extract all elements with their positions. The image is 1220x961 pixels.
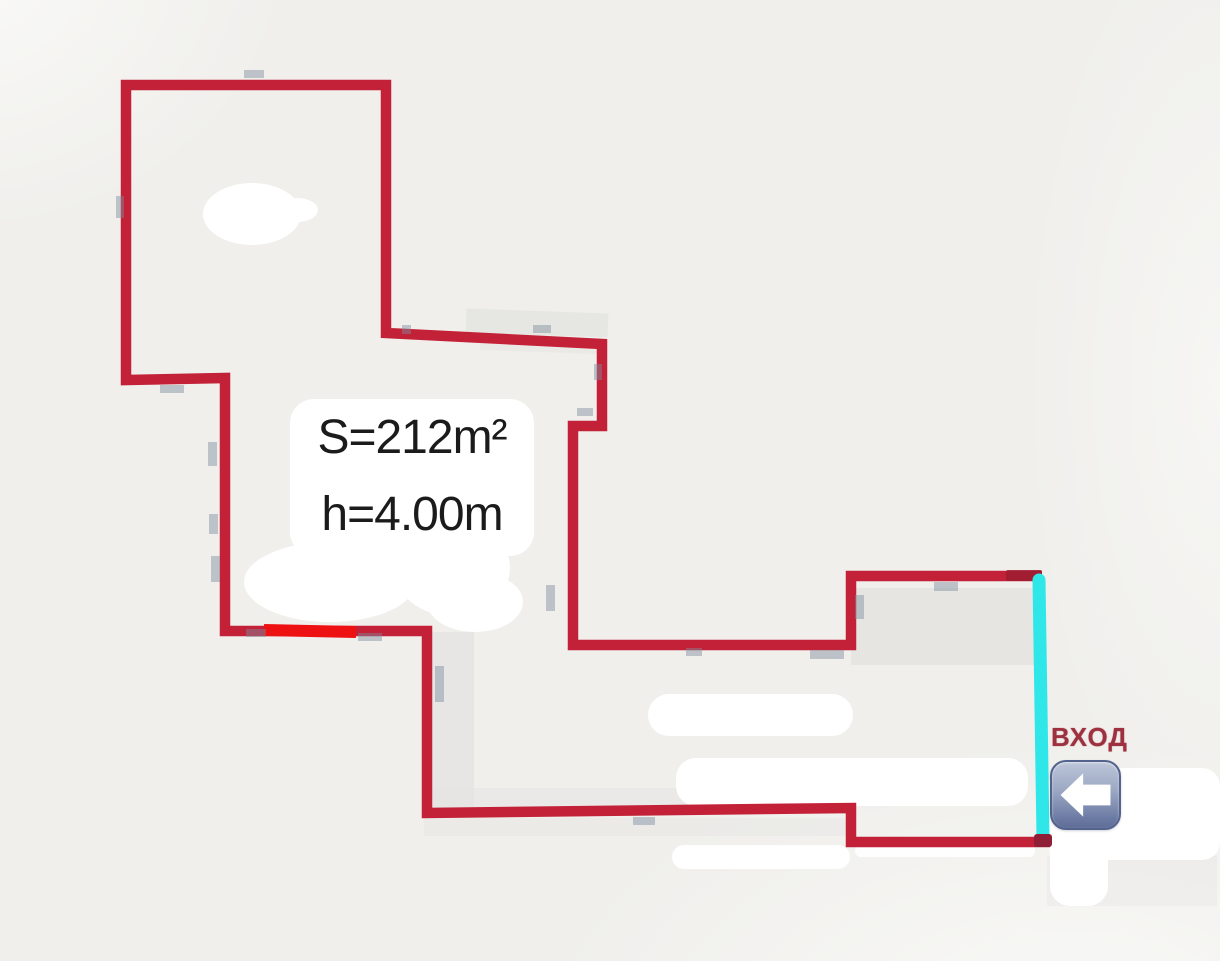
dimension-mark: [402, 325, 411, 334]
entrance-wall-highlight: [1039, 580, 1043, 837]
area-label-card: S=212m² h=4.00m: [290, 399, 534, 556]
dimension-mark: [246, 629, 266, 637]
erase-blob: [276, 198, 318, 222]
dimension-mark: [160, 385, 184, 393]
dimension-mark: [686, 648, 702, 656]
dimension-mark: [934, 582, 958, 591]
height-value: h=4.00m: [290, 476, 534, 553]
dimension-mark: [208, 442, 217, 466]
erase-blob: [427, 572, 523, 632]
erase-blob: [672, 845, 850, 869]
wall-shadow: [428, 632, 474, 814]
dimension-mark: [577, 408, 593, 416]
dimension-mark: [244, 70, 264, 78]
dimension-mark: [211, 556, 220, 582]
area-value: S=212m²: [290, 399, 534, 476]
dimension-mark: [633, 817, 655, 825]
dimension-mark: [594, 364, 602, 380]
dimension-mark: [209, 514, 218, 534]
marker-line: [264, 630, 356, 632]
left-arrow-icon: [1052, 762, 1119, 828]
dimension-mark: [116, 196, 124, 218]
dimension-mark: [810, 650, 844, 659]
erase-blob: [676, 758, 1028, 806]
entrance-arrow-sticker: [1050, 760, 1121, 830]
dimension-mark: [546, 585, 555, 611]
dimension-mark: [358, 633, 382, 641]
dimension-mark: [533, 325, 551, 333]
erase-blob: [648, 694, 853, 736]
floorplan-image: S=212m² h=4.00m ВХОД: [0, 0, 1220, 961]
floorplan-drawing: [0, 0, 1220, 961]
wall-junction-mark: [1034, 834, 1052, 847]
dimension-mark: [435, 666, 444, 702]
wall-shadow: [851, 588, 1040, 665]
erase-blob: [1050, 830, 1108, 906]
dimension-mark: [855, 595, 864, 619]
entrance-label: ВХОД: [1051, 722, 1128, 753]
